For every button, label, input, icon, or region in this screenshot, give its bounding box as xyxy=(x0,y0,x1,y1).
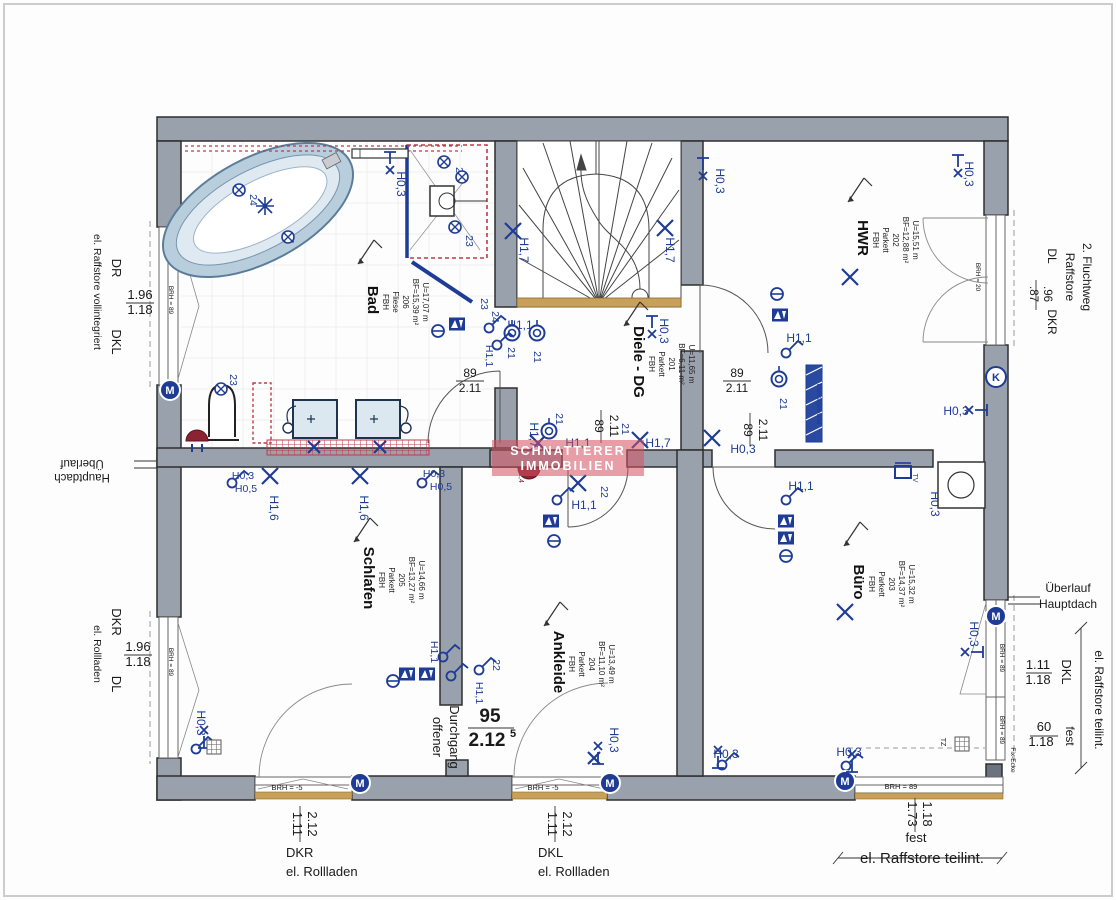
room-name: Schlafen xyxy=(360,547,377,610)
tv-outlet-icon xyxy=(895,463,911,478)
label-24-65: 24 xyxy=(247,194,259,206)
washbasin-counter xyxy=(267,400,429,455)
stair-first-step xyxy=(517,298,681,307)
ceiling-light-icon xyxy=(837,604,853,620)
room-info: BF=14,37 m² xyxy=(897,561,906,608)
window-bottom-dkl xyxy=(512,683,608,799)
label-89-53: 89 xyxy=(592,419,606,433)
label-2.12-58: 2.12 xyxy=(469,730,506,751)
room-label-diele-dg: Diele - DGFBHParkett201BF=6,11 m²U=11,65… xyxy=(624,302,696,398)
svg-text:M: M xyxy=(165,385,174,397)
room-info: 204 xyxy=(587,657,596,671)
ceiling-star-light-icon xyxy=(256,197,274,215)
label-2.11-50: 2.11 xyxy=(459,381,482,395)
label-h1-7-71: H1,7 xyxy=(517,237,531,263)
grid-box-icon xyxy=(207,740,221,754)
label-brh-5-35: BRH = -5 xyxy=(527,783,558,792)
wall-ankleide-buero xyxy=(677,450,703,776)
label-89-51: 89 xyxy=(730,366,744,380)
wall-top xyxy=(157,117,1008,141)
room-label-büro: BüroFBHParkett203BF=14,37 m²U=15,32 m xyxy=(844,522,916,608)
floorplan-svg: BadFBHFliese206BF=15,39 m²U=17,07 mDiele… xyxy=(0,0,1116,900)
junction-theta-icon xyxy=(432,325,444,337)
room-info: U=11,65 m xyxy=(687,345,696,384)
watermark: SCHNATTERER IMMOBILIEN xyxy=(492,440,644,476)
label-2.12-37: 2.12 xyxy=(305,811,320,836)
outlet-cross-icon xyxy=(456,171,468,183)
label-dkr-7: DKR xyxy=(109,608,124,635)
wall-bottom-3 xyxy=(607,776,855,800)
label-23-64: 23 xyxy=(463,235,475,247)
label-2.11-52: 2.11 xyxy=(726,381,749,395)
label-brh-89-31: BRH = 89 xyxy=(998,716,1005,745)
label-h0-3-101: H0,3 xyxy=(607,727,621,753)
room-info: FBH xyxy=(871,232,880,248)
label-dl-16: DL xyxy=(1045,248,1059,264)
label-h0-5-90: H0,5 xyxy=(235,483,257,495)
room-info: 205 xyxy=(397,573,406,587)
label-fest-47: fest xyxy=(906,830,927,845)
socket-icon xyxy=(772,366,787,387)
antenna-av-box-icon xyxy=(772,309,788,322)
label-89-49: 89 xyxy=(463,366,477,380)
staircase xyxy=(517,141,681,307)
label-22-87: 22 xyxy=(598,486,610,498)
room-info: BF=12,88 m² xyxy=(901,217,910,264)
label-23-67: 23 xyxy=(227,374,239,386)
room-info: FBH xyxy=(377,572,386,588)
watermark-line2: IMMOBILIEN xyxy=(521,459,616,473)
wall-connection-icon xyxy=(961,646,983,658)
label-h1-1-105: H1,1 xyxy=(428,641,440,663)
ceiling-light-icon xyxy=(704,430,720,446)
label-h0-3-75: H0,3 xyxy=(962,161,976,187)
antenna-av-box-icon xyxy=(778,532,794,545)
wall-diele-hwr-upper xyxy=(681,141,703,285)
antenna-av-box-icon xyxy=(399,668,415,681)
shutter-motor-icon: M xyxy=(600,773,620,793)
svg-text:M: M xyxy=(840,776,849,788)
label-h1-6-91: H1,6 xyxy=(267,495,281,521)
label-dl-11: DL xyxy=(109,676,124,693)
bad-radiator xyxy=(352,149,408,158)
label-hauptdach-6: Hauptdach xyxy=(54,471,110,483)
label-h0-3-74: H0,3 xyxy=(713,168,727,194)
label-1.18-10: 1.18 xyxy=(125,654,150,669)
wall-connection-icon xyxy=(592,742,604,764)
label-h0-3-62: H0,3 xyxy=(394,171,408,197)
label-el.-raffstore-teilint.-23: el. Raffstore teilint. xyxy=(1092,650,1106,749)
ceiling-light-icon xyxy=(842,269,858,285)
room-info: FBH xyxy=(567,656,576,672)
label-dr-0: DR xyxy=(109,259,124,278)
label-21-77: 21 xyxy=(505,347,517,359)
room-info: BF=6,11 m² xyxy=(677,343,686,385)
label-.96-18: .96 xyxy=(1041,286,1053,302)
antenna-av-box-icon xyxy=(449,318,465,331)
room-info: BF=11,10 m² xyxy=(597,641,606,687)
room-label-hwr: HWRFBHParkett202BF=12,88 m²U=15,51 m xyxy=(848,178,920,264)
wall-bottom-2 xyxy=(352,776,512,800)
label-tv-107: TV xyxy=(911,474,918,483)
label-h1-6-92: H1,6 xyxy=(357,495,371,521)
room-info: FBH xyxy=(381,294,390,310)
label-60-28: 60 xyxy=(1037,719,1051,734)
outlet-cross-icon xyxy=(282,231,294,243)
outlet-cross-icon xyxy=(215,383,227,395)
room-info: 206 xyxy=(401,295,410,309)
label-h0-3-81: H0,3 xyxy=(730,442,756,456)
wall-right-1 xyxy=(984,141,1008,215)
room-info: U=15,32 m xyxy=(907,564,916,604)
bad-sink xyxy=(186,430,208,441)
label-fix-ecke-32: Fix-Ecke xyxy=(1009,747,1016,773)
room-label-schlafen: SchlafenFBHParkett205BF=13,27 m²U=14,66 … xyxy=(354,518,426,609)
grid-box-icon xyxy=(955,737,969,751)
junction-theta-icon xyxy=(771,288,783,300)
ceiling-light-icon xyxy=(352,468,368,484)
room-info: U=17,07 m xyxy=(421,282,430,322)
room-info: Parkett xyxy=(657,351,666,377)
label-1.11-25: 1.11 xyxy=(1026,657,1050,672)
label-offener-60: offener xyxy=(430,717,445,758)
room-info: 202 xyxy=(891,233,900,247)
label-h1-7-72: H1,7 xyxy=(663,237,677,263)
label-1.96-2: 1.96 xyxy=(127,287,152,302)
door-hwr xyxy=(700,285,768,353)
junction-theta-icon xyxy=(548,535,560,547)
label-fest-27: fest xyxy=(1063,726,1077,746)
wall-hwr-buero xyxy=(775,450,933,467)
ceiling-light-icon xyxy=(262,468,278,484)
label-21-80: 21 xyxy=(777,398,789,410)
label-1.11-40: 1.11 xyxy=(545,812,560,836)
label-raffstore-15: Raffstore xyxy=(1063,253,1077,302)
room-info: Parkett xyxy=(387,567,396,593)
room-info: U=13,49 m xyxy=(607,644,616,684)
outlet-cross-icon xyxy=(233,184,245,196)
room-info: Parkett xyxy=(877,571,886,597)
room-info: 203 xyxy=(887,577,896,591)
label-1.18-26: 1.18 xyxy=(1025,672,1050,687)
room-info: FBH xyxy=(867,576,876,592)
label-1.18-46: 1.18 xyxy=(920,801,935,826)
window-bottom-dkr xyxy=(255,684,352,799)
label-1.18-3: 1.18 xyxy=(127,302,152,317)
shutter-motor-icon: M xyxy=(835,771,855,791)
label-brh-89-12: BRH = 89 xyxy=(167,286,174,315)
label-h0-3-73: H0,3 xyxy=(657,318,671,344)
window-left-lower xyxy=(150,611,199,764)
label-el.-rollladen-39: el. Rollladen xyxy=(286,864,358,879)
label-95-57: 95 xyxy=(479,706,501,727)
label-.87-17: .87 xyxy=(1027,286,1039,302)
label-el.-raffstore-teilint.-48: el. Raffstore teilint. xyxy=(860,850,984,867)
shutter-motor-icon: M xyxy=(350,773,370,793)
label-dkr-38: DKR xyxy=(286,845,313,860)
label-dkl-4: DKL xyxy=(109,329,124,354)
label-durchgang-61: Durchgang xyxy=(447,705,462,769)
room-name: Ankleide xyxy=(550,631,567,694)
svg-text:M: M xyxy=(605,778,614,790)
svg-text:K: K xyxy=(992,372,1000,384)
junction-theta-icon xyxy=(780,550,792,562)
antenna-av-box-icon xyxy=(419,668,435,681)
room-info: U=14,66 m xyxy=(417,560,426,600)
label-brh-5-34: BRH = -5 xyxy=(271,783,302,792)
label-überlauf-5: Überlauf xyxy=(59,457,103,469)
label-h1-7-86: H1,7 xyxy=(645,436,671,450)
room-info: BF=13,27 m² xyxy=(407,557,416,604)
antenna-av-box-icon xyxy=(778,515,794,528)
shutter-motor-icon: M xyxy=(986,606,1006,626)
label-tz-33: TZ xyxy=(939,738,946,747)
room-name: Büro xyxy=(850,565,867,600)
label-brh-20-20: BRH = 20 xyxy=(974,263,981,292)
watermark-line1: SCHNATTERER xyxy=(510,444,626,458)
label-1.73-45: 1.73 xyxy=(905,801,920,826)
label-5-59: 5 xyxy=(510,728,516,740)
label-2.-fluchtweg-14: 2. Fluchtweg xyxy=(1080,243,1094,311)
k-marker-icon: K xyxy=(986,367,1006,387)
room-name: HWR xyxy=(854,220,871,256)
label-h0-5-94: H0,5 xyxy=(430,481,452,493)
room-info: Fliese xyxy=(391,291,400,313)
label-dkl-24: DKL xyxy=(1059,659,1074,684)
label-2.11-54: 2.11 xyxy=(607,415,621,438)
label-21-83: 21 xyxy=(553,413,565,425)
label-21-85: 21 xyxy=(619,423,631,435)
door-buero xyxy=(713,467,775,529)
label-el.-rollladen-43: el. Rollladen xyxy=(538,864,610,879)
room-label-bad: BadFBHFliese206BF=15,39 m²U=17,07 m xyxy=(358,240,430,326)
room-info: FBH xyxy=(647,356,656,372)
room-name: Diele - DG xyxy=(630,326,647,398)
outlet-cross-icon xyxy=(449,221,461,233)
label-überlauf-21: Überlauf xyxy=(1045,581,1091,595)
label-brh-89-30: BRH = 89 xyxy=(998,644,1005,673)
label-23-68: 23 xyxy=(478,298,490,310)
window-right-fluchtweg xyxy=(923,210,1014,350)
label-hauptdach-22: Hauptdach xyxy=(1039,597,1097,611)
svg-text:M: M xyxy=(355,778,364,790)
label-1.11-36: 1.11 xyxy=(290,812,305,836)
room-name: Bad xyxy=(364,286,381,314)
window-bottom-fest xyxy=(848,748,1003,799)
label-dkl-42: DKL xyxy=(538,845,563,860)
junction-theta-icon xyxy=(387,675,399,687)
label-el.-rollladen-8: el. Rollladen xyxy=(91,625,103,683)
label-montagewand-106: Montagewand xyxy=(815,384,822,425)
room-info: Parkett xyxy=(881,227,890,253)
room-info: BF=15,39 m² xyxy=(411,279,420,326)
label-h0-3-98: H0,3 xyxy=(967,621,981,647)
room-info: U=15,51 m xyxy=(911,220,920,260)
label-brh-89-13: BRH = 89 xyxy=(167,648,174,677)
svg-text:M: M xyxy=(991,611,1000,623)
label-brh-89-44: BRH = 89 xyxy=(885,782,918,791)
wall-left-2 xyxy=(157,385,181,617)
antenna-av-box-icon xyxy=(543,515,559,528)
room-label-ankleide: AnkleideFBHParkett204BF=11,10 m²U=13,49 … xyxy=(544,602,616,693)
label-2.11-56: 2.11 xyxy=(756,419,770,442)
room-info: 201 xyxy=(667,357,676,371)
floorplan-page: BadFBHFliese206BF=15,39 m²U=17,07 mDiele… xyxy=(0,0,1116,900)
label-21-78: 21 xyxy=(531,351,543,363)
label-el.-raffstore-vollintegriert-1: el. Raffstore vollintegriert xyxy=(91,234,103,350)
room-info: Parkett xyxy=(577,651,586,677)
bath-fixtures xyxy=(142,115,487,455)
label-dkr-19: DKR xyxy=(1045,309,1059,335)
label-1.96-9: 1.96 xyxy=(125,639,150,654)
label-h1-1-104: H1,1 xyxy=(473,682,485,704)
label-89-55: 89 xyxy=(741,423,755,437)
outlet-cross-icon xyxy=(438,156,450,168)
label-2.12-41: 2.12 xyxy=(560,811,575,836)
label-1.18-29: 1.18 xyxy=(1028,734,1053,749)
ceiling-light-icon xyxy=(570,475,586,491)
wall-bottom-1 xyxy=(157,776,255,800)
washing-machine-icon xyxy=(938,462,985,508)
label-h1-1-88: H1,1 xyxy=(571,498,597,512)
shutter-motor-icon: M xyxy=(160,380,180,400)
